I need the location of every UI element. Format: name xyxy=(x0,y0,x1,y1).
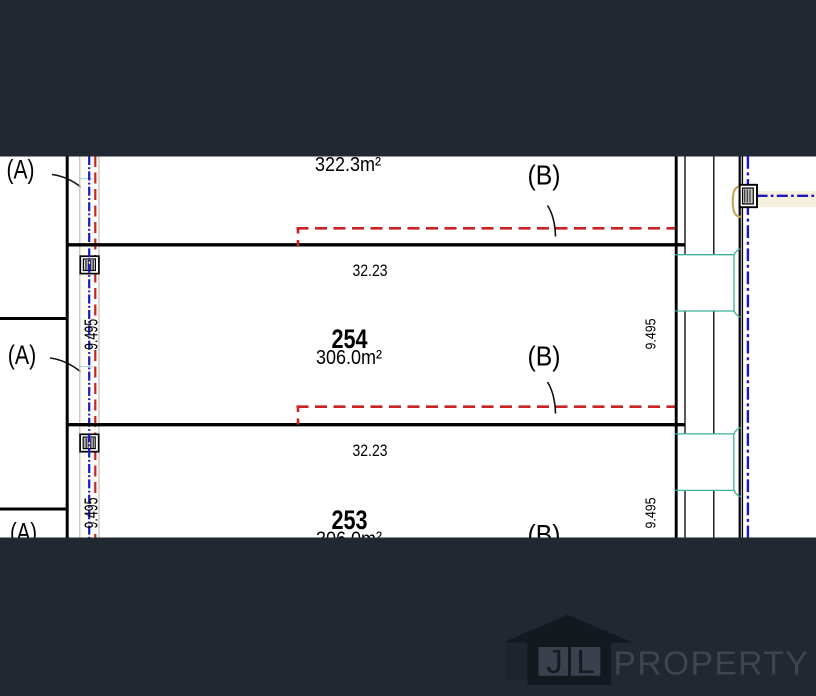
svg-text:322.3m²: 322.3m² xyxy=(315,154,381,176)
svg-text:306.0m²: 306.0m² xyxy=(316,347,382,369)
svg-text:L: L xyxy=(576,643,594,680)
svg-text:(B): (B) xyxy=(528,159,561,190)
svg-text:J: J xyxy=(546,643,563,680)
svg-text:32.23: 32.23 xyxy=(353,442,388,460)
svg-text:(A): (A) xyxy=(7,154,35,184)
svg-text:9.495: 9.495 xyxy=(82,498,102,529)
svg-text:9.495: 9.495 xyxy=(643,498,660,529)
svg-text:9.495: 9.495 xyxy=(643,319,660,350)
svg-text:9.495: 9.495 xyxy=(82,319,102,350)
svg-text:32.23: 32.23 xyxy=(353,262,388,280)
svg-text:(A): (A) xyxy=(8,340,37,370)
svg-text:PROPERTY: PROPERTY xyxy=(614,646,810,683)
svg-text:(B): (B) xyxy=(528,341,561,372)
